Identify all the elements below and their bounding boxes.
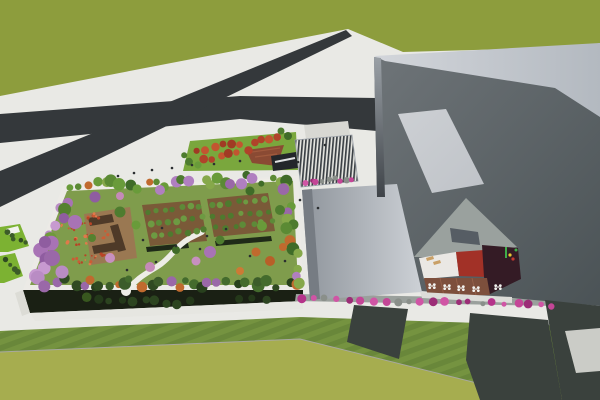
tree <box>238 211 243 216</box>
tree <box>475 288 477 290</box>
tree <box>272 284 279 291</box>
tree <box>428 283 431 286</box>
tree <box>258 181 264 187</box>
tree <box>211 143 219 151</box>
tree <box>472 289 475 292</box>
tree <box>93 212 96 215</box>
tree <box>293 249 302 258</box>
tree <box>94 281 104 291</box>
tree <box>182 277 189 284</box>
tree <box>383 298 391 306</box>
tree <box>68 215 82 229</box>
tree <box>172 300 181 309</box>
tree <box>457 285 460 288</box>
tree <box>494 287 497 290</box>
tree <box>89 260 92 263</box>
tree <box>56 266 69 279</box>
tree <box>91 255 93 257</box>
tree <box>337 178 342 183</box>
tree <box>213 224 218 229</box>
playground-red <box>511 257 514 260</box>
tree <box>105 298 112 305</box>
tree <box>236 178 247 189</box>
tree <box>165 219 171 225</box>
tree <box>73 229 75 231</box>
tree <box>156 220 162 226</box>
tree <box>192 257 201 266</box>
tree <box>85 181 93 189</box>
tree <box>208 156 215 163</box>
tree <box>155 185 165 195</box>
playground-yellow <box>508 253 511 256</box>
tree <box>279 243 287 251</box>
tree <box>167 276 177 286</box>
tree <box>266 210 271 215</box>
tree <box>202 278 211 287</box>
tree <box>236 141 243 148</box>
tree <box>256 210 263 217</box>
tree <box>429 297 438 306</box>
tree <box>284 132 292 140</box>
tree <box>321 295 328 302</box>
tree <box>252 198 258 204</box>
tree <box>169 207 175 213</box>
tree <box>252 248 261 257</box>
tree <box>499 284 502 287</box>
tree <box>5 229 11 235</box>
tree <box>74 238 77 241</box>
tree <box>275 205 285 215</box>
tree <box>100 252 103 255</box>
tree <box>72 258 75 261</box>
tree <box>524 300 533 309</box>
tree <box>220 215 225 220</box>
building-shadow-2 <box>466 313 562 400</box>
tree <box>247 211 252 216</box>
tree <box>179 204 185 210</box>
tree <box>297 294 306 303</box>
tree <box>431 285 433 287</box>
tree <box>261 196 268 203</box>
tree <box>88 234 96 242</box>
tree <box>228 213 234 219</box>
tree <box>84 254 86 256</box>
tree <box>278 128 285 135</box>
tree <box>143 296 150 303</box>
tree <box>200 214 206 220</box>
tree <box>185 230 192 237</box>
tree <box>66 241 69 244</box>
tree <box>538 302 544 308</box>
tree <box>103 254 105 256</box>
tree <box>324 144 327 147</box>
tree <box>148 221 155 228</box>
tree <box>151 232 158 239</box>
tree <box>204 246 216 258</box>
tree <box>433 283 436 286</box>
tree <box>456 299 462 305</box>
tree <box>234 224 239 229</box>
tree <box>89 222 92 225</box>
tree <box>257 136 265 144</box>
tree <box>194 148 200 154</box>
tree <box>472 286 475 289</box>
tree <box>59 213 69 223</box>
tree <box>151 169 154 172</box>
tree <box>248 295 255 302</box>
tree <box>394 298 402 306</box>
aerial-site-rendering <box>0 0 600 400</box>
tree <box>246 187 255 196</box>
tree <box>225 228 228 231</box>
tree <box>162 300 170 308</box>
tree <box>15 269 21 275</box>
tree <box>477 289 480 292</box>
tree <box>200 226 206 232</box>
tree <box>240 278 250 288</box>
tree <box>281 222 293 234</box>
tree <box>284 260 287 263</box>
tree <box>149 295 159 305</box>
tree <box>239 160 242 163</box>
tree <box>181 215 187 221</box>
tree <box>39 236 51 248</box>
tree <box>209 202 215 208</box>
tree <box>227 140 236 149</box>
tree <box>433 286 436 289</box>
rendering-canvas <box>0 0 600 400</box>
tree <box>448 287 451 290</box>
tree <box>252 221 258 227</box>
tree <box>206 235 209 238</box>
tree <box>75 183 82 190</box>
tree <box>257 221 267 231</box>
tree <box>153 179 160 186</box>
tree <box>356 297 364 305</box>
tree <box>217 202 223 208</box>
tree <box>216 236 225 245</box>
tree <box>171 167 174 170</box>
tree <box>416 298 424 306</box>
tree <box>462 288 465 291</box>
tree <box>75 257 78 260</box>
tree <box>102 236 105 239</box>
tree <box>497 286 499 288</box>
tree <box>196 204 202 210</box>
tree <box>320 179 325 184</box>
tree <box>212 278 221 287</box>
tree <box>168 231 174 237</box>
tree <box>428 286 431 289</box>
tree <box>494 284 497 287</box>
tree <box>186 297 194 305</box>
tree <box>188 203 195 210</box>
tree <box>297 161 300 164</box>
tree <box>440 297 449 306</box>
tree <box>113 178 126 191</box>
tree <box>406 299 411 304</box>
tree <box>145 262 155 272</box>
tree <box>84 259 86 261</box>
tree <box>273 133 281 141</box>
tree <box>97 216 100 219</box>
tree <box>499 287 502 290</box>
tree <box>142 239 145 242</box>
tree <box>85 242 88 245</box>
tree <box>8 263 12 267</box>
tree <box>199 155 208 164</box>
tree <box>191 164 194 167</box>
tree <box>303 180 309 186</box>
tree <box>137 282 148 293</box>
tree <box>68 227 70 229</box>
tree <box>125 276 132 283</box>
tree <box>67 184 74 191</box>
tree <box>106 282 114 290</box>
tree <box>117 175 120 178</box>
tree <box>163 208 168 213</box>
tree <box>104 230 106 232</box>
tree <box>370 298 378 306</box>
tree <box>260 275 271 286</box>
tree <box>81 261 83 263</box>
tree <box>477 286 480 289</box>
tree <box>462 285 465 288</box>
tree <box>153 208 158 213</box>
tree <box>82 292 92 302</box>
tree <box>312 179 318 185</box>
tree <box>222 277 231 286</box>
tree <box>213 163 216 166</box>
tree <box>90 192 101 203</box>
tree <box>86 276 95 285</box>
tree <box>119 297 126 304</box>
tree <box>146 179 153 186</box>
tree <box>210 214 216 220</box>
tree <box>105 253 115 263</box>
tree <box>349 177 354 182</box>
tree <box>225 200 232 207</box>
tree <box>84 222 86 224</box>
tree <box>457 288 460 291</box>
tree <box>11 237 16 242</box>
tree <box>116 192 124 200</box>
tree <box>87 217 90 220</box>
tree <box>465 299 471 305</box>
tree <box>201 146 209 154</box>
tree <box>128 297 138 307</box>
tree <box>23 240 27 244</box>
tree <box>93 177 102 186</box>
tree <box>265 256 275 266</box>
tree <box>132 221 141 230</box>
tree <box>175 245 178 248</box>
tree <box>176 283 185 292</box>
tree <box>225 179 235 189</box>
tree <box>95 215 97 217</box>
tree <box>317 207 320 210</box>
tree <box>270 175 277 182</box>
tree <box>346 297 353 304</box>
tree <box>194 161 201 168</box>
tree <box>333 296 339 302</box>
tree <box>181 152 187 158</box>
tree <box>194 228 201 235</box>
playground-pole <box>505 247 507 258</box>
tree <box>95 255 97 257</box>
tree <box>155 261 158 264</box>
tree <box>294 278 305 289</box>
tree <box>44 250 60 266</box>
tree <box>236 267 244 275</box>
tree <box>460 287 462 289</box>
tree <box>175 228 181 234</box>
tree <box>75 243 78 246</box>
tree <box>502 302 507 307</box>
tree <box>515 299 524 308</box>
tree <box>488 298 496 306</box>
tree <box>224 149 233 158</box>
tree <box>235 295 243 303</box>
tree <box>38 280 50 292</box>
tree <box>247 173 258 184</box>
tree <box>233 149 239 155</box>
tree <box>94 257 96 259</box>
tree <box>243 200 248 205</box>
tree <box>448 284 451 287</box>
tree <box>548 303 554 309</box>
tree <box>3 257 8 262</box>
tree <box>61 224 63 226</box>
tree <box>173 218 180 225</box>
tree <box>106 233 109 236</box>
tree <box>311 295 317 301</box>
tree <box>183 176 194 187</box>
tree <box>159 232 164 237</box>
tree <box>77 260 80 263</box>
tree <box>133 172 136 175</box>
tree <box>327 177 333 183</box>
tree <box>86 234 88 236</box>
tree <box>263 296 271 304</box>
playground-green <box>515 249 518 252</box>
tree <box>236 198 242 204</box>
tree <box>480 301 485 306</box>
tree <box>133 184 142 193</box>
tree <box>265 135 273 143</box>
courtyard-red-floor <box>456 250 487 277</box>
tree <box>278 183 290 195</box>
tree <box>50 221 60 231</box>
tree <box>244 146 252 154</box>
tree <box>443 284 446 287</box>
tree <box>153 277 163 287</box>
tree <box>220 141 227 148</box>
tree <box>446 286 448 288</box>
tree <box>78 243 80 245</box>
tree <box>19 238 24 243</box>
tree <box>443 287 446 290</box>
tree <box>299 199 302 202</box>
tree <box>115 207 126 218</box>
tree <box>332 175 337 180</box>
tree <box>270 218 275 223</box>
tree <box>239 221 246 228</box>
tree <box>126 269 129 272</box>
tree <box>145 210 150 215</box>
tree <box>83 235 87 239</box>
tree <box>199 248 202 251</box>
tree <box>94 295 103 304</box>
tree <box>249 255 252 258</box>
tree <box>161 227 164 230</box>
tree <box>190 216 196 222</box>
